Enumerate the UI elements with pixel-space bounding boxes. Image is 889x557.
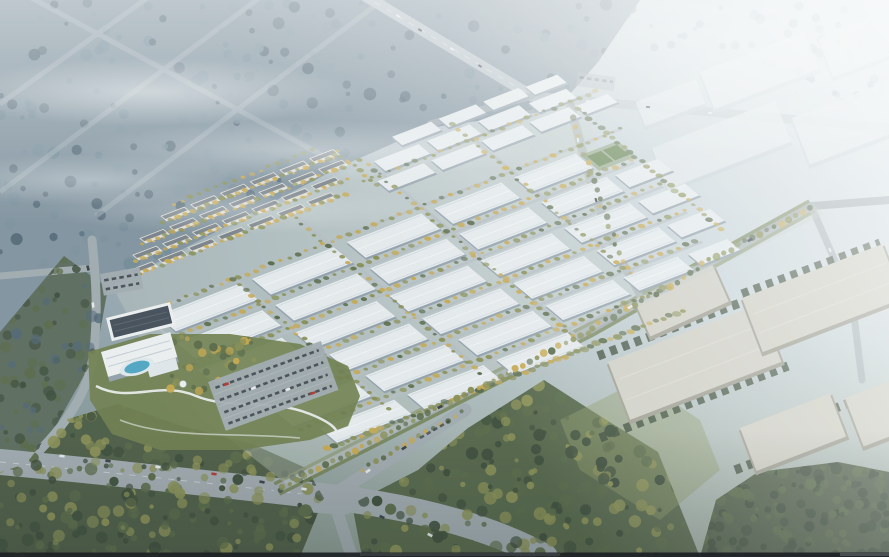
industrial-park-aerial-rendering — [0, 0, 889, 557]
bottom-edge-bar — [0, 553, 889, 557]
atmosphere-haze — [0, 0, 889, 557]
aerial-render-viewport — [0, 0, 889, 557]
